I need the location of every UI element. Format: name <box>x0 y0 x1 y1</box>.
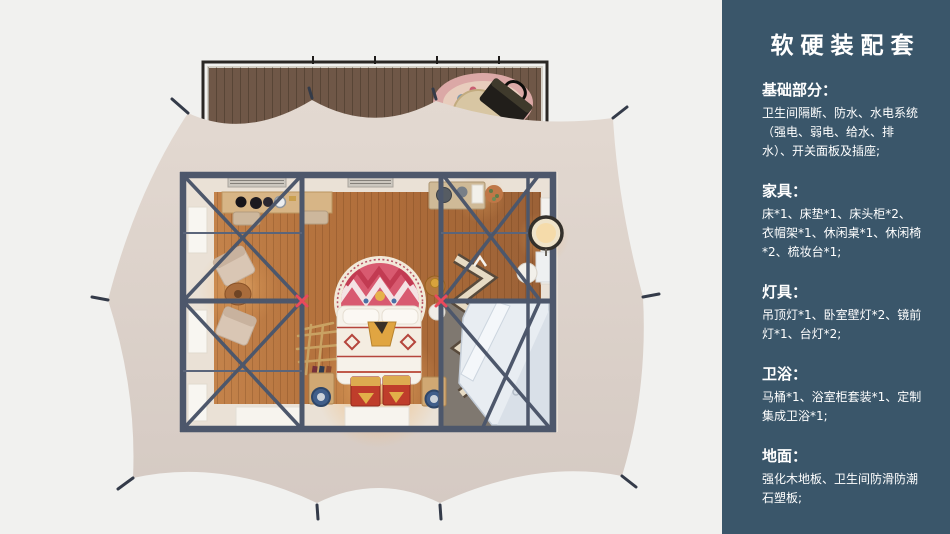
section-furniture-heading: 家具： <box>762 180 922 201</box>
section-lighting: 灯具： 吊顶灯*1、卧室壁灯*2、镜前灯*1、台灯*2; <box>762 281 922 344</box>
section-flooring: 地面： 强化木地板、卫生间防滑防潮石塑板; <box>762 445 922 508</box>
package-sidebar: 软硬装配套 基础部分： 卫生间隔断、防水、水电系统（强电、弱电、给水、排水）、开… <box>722 0 950 534</box>
section-bathroom-heading: 卫浴： <box>762 363 922 384</box>
floorplan-svg <box>0 0 722 534</box>
nightstand-left <box>309 373 334 406</box>
section-basics-heading: 基础部分： <box>762 79 922 100</box>
section-flooring-heading: 地面： <box>762 445 922 466</box>
section-lighting-body: 吊顶灯*1、卧室壁灯*2、镜前灯*1、台灯*2; <box>762 306 922 344</box>
leisure-table-center <box>234 290 242 298</box>
section-furniture: 家具： 床*1、床垫*1、床头柜*2、衣帽架*1、休闲桌*1、休闲椅*2、梳妆台… <box>762 180 922 262</box>
gold-jug <box>431 279 440 288</box>
section-basics: 基础部分： 卫生间隔断、防水、水电系统（强电、弱电、给水、排水）、开关面板及插座… <box>762 79 922 161</box>
section-bathroom-body: 马桶*1、浴室柜套装*1、定制集成卫浴*1; <box>762 388 922 426</box>
bed-foot-chests <box>351 376 410 406</box>
slide: 软硬装配套 基础部分： 卫生间隔断、防水、水电系统（强电、弱电、给水、排水）、开… <box>0 0 950 534</box>
plant <box>485 185 503 203</box>
sidebar-title: 软硬装配套 <box>762 26 929 60</box>
gold-box <box>289 196 296 201</box>
bed <box>337 306 421 384</box>
cabin <box>180 171 569 448</box>
section-bathroom: 卫浴： 马桶*1、浴室柜套装*1、定制集成卫浴*1; <box>762 363 922 426</box>
section-flooring-body: 强化木地板、卫生间防滑防潮石塑板; <box>762 470 922 508</box>
section-furniture-body: 床*1、床垫*1、床头柜*2、衣帽架*1、休闲桌*1、休闲椅*2、梳妆台*1; <box>762 205 922 262</box>
section-lighting-heading: 灯具： <box>762 281 922 302</box>
section-basics-body: 卫生间隔断、防水、水电系统（强电、弱电、给水、排水）、开关面板及插座; <box>762 104 922 161</box>
hat <box>250 197 262 209</box>
hat <box>236 197 247 208</box>
floorplan-render <box>0 0 722 534</box>
